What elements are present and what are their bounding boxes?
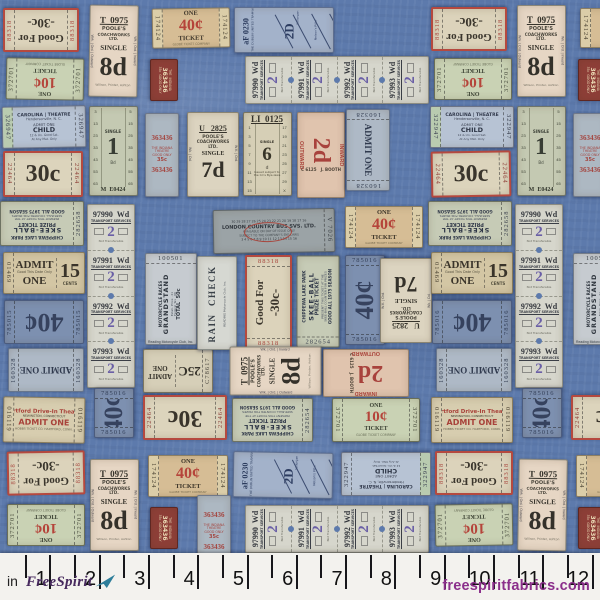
ticket-inner: 78501640¢785016 [346, 256, 384, 344]
ticket-inner: RAIN CHECKREADING Motorcycle Club, Inc. [198, 257, 236, 349]
ticket-side-text: Wk. | Od. [188, 115, 192, 194]
ticket-inner: OUTWARDINWARD2dC 6125 J. BOOTH [324, 350, 408, 396]
ticket-text: ONE [23, 275, 47, 287]
ticket-text: M E0424 [529, 187, 554, 194]
ticket-forty_cent: 174124ONE40¢TICKETGLOBE TICKET COMPANY17… [345, 206, 423, 248]
grid-number: 13 [91, 121, 101, 126]
ticket-body: Good For-30c- [247, 267, 290, 338]
ticket-body: Reading Motorcycle Club, Inc.MOTORCYCLE … [574, 264, 600, 344]
ticket-body: 30 29 28 27 26 25 24 23 22 21 20 19 18 1… [214, 209, 325, 253]
number-column: 3132333435363 [519, 108, 530, 187]
ticket-text: LI 0125 [251, 114, 283, 124]
ticket-inner: 372701ONE10¢TICKETGLOBE TICKET COMPANY37… [7, 58, 84, 99]
ticket-text: 1 [107, 134, 119, 161]
ticket-grandstand: Reading Motorcycle Club, Inc.MOTORCYCLE … [573, 253, 600, 345]
ticket-inner: THE INDIANA36343635c GOOD ONLY [151, 508, 177, 548]
ticket-text: T 0975 [239, 357, 249, 385]
ticket-text: 15 [60, 260, 80, 282]
mini-box [361, 63, 368, 73]
ticket-text: GLOBE TICKET COMPANY [173, 42, 210, 46]
ticket-text: 35c GOOD ONLY [585, 515, 589, 542]
ticket-text: 363436 [161, 67, 168, 92]
strip-segment: 97991 WdTRANSPORT SERVICES2Not Transfera… [516, 251, 562, 297]
ticket-side-text: Wrk. | Ord. | Outward [89, 8, 95, 94]
strip-value-row: 2 [522, 315, 556, 332]
ticket-right-block: ADMITONE [145, 355, 176, 387]
ticket-text: CHILD [375, 467, 397, 474]
ticket-text: GOOD ALL 1975 SEASON [239, 405, 294, 409]
ticket-stub: 88318 [495, 9, 505, 49]
ticket-stub: 174124 [217, 456, 227, 496]
strip-value-row: 2 [522, 224, 556, 241]
ticket-text: 40¢ [99, 399, 128, 427]
ticket-u2825_7d: Wk. | Od.W.K. | Ord.U 2825POOLE'SCOACHWO… [380, 258, 432, 343]
ticket-text: TICKET [34, 512, 57, 519]
mini-box [361, 512, 368, 522]
strip-value-row: 2 [94, 224, 128, 241]
ticket-text: 10¢ [365, 409, 388, 426]
mini-box [407, 63, 414, 73]
ticket-body: Wk. | Od.W.K. | Ord.U 2825POOLE'SCOACHWO… [188, 113, 238, 196]
strip-segment: 97993 WdTRANSPORT SERVICES2Not Transfera… [383, 57, 428, 103]
ticket-body: aF 0230THE DUBLIN UNITED TRAMWAYS CO., L… [235, 8, 333, 52]
ticket-stub: 174124 [346, 207, 356, 247]
ticket-text: GLOBE TICKET COMPANY [365, 242, 402, 245]
strip-segment: 97993 WdTRANSPORT SERVICES2Not Transfera… [516, 342, 562, 387]
ticket-body: Reading Motorcycle Club, Inc.MOTORCYCLE … [146, 264, 196, 344]
ticket-text: Not Transferable [373, 68, 376, 93]
ticket-chippewa: 282658CHIPPEWA LAKE PARKSKEE-BALLPRIZE T… [428, 201, 512, 246]
grid-number: 23 [519, 133, 529, 138]
ticket-stub: 22464 [499, 152, 510, 194]
ticket-text: ONE [467, 90, 480, 97]
ticket-text: CHIPPEWA LAKE PARK [11, 234, 63, 239]
grid-number: 33 [91, 145, 101, 150]
ticket-stub: 372701 [502, 504, 513, 544]
ticket-text: 40¢ [453, 307, 492, 336]
grid-number: 21 [280, 143, 290, 148]
ticket-stub: 016119 [74, 399, 85, 443]
ruler-tick-inch [148, 555, 150, 589]
ticket-body: ONE40¢TICKETGLOBE TICKET COMPANY [163, 9, 220, 48]
ticket-text: 2 [310, 525, 327, 533]
ticket-text: Bd [538, 161, 543, 165]
ticket-inner: 322947CAROLINA | THEATREHendersonville, … [431, 107, 513, 147]
ticket-body: ADMITGood This Date OnlyONE15CENTS [14, 253, 84, 293]
ticket-text: READING Motorcycle Club, Inc. [223, 269, 226, 339]
ticket-text: ADMIT ONE [20, 365, 73, 375]
grid-number: 27 [280, 170, 290, 175]
ticket-inner: 372701ONE10¢TICKETGLOBE TICKET COMPANY37… [435, 59, 511, 99]
ticket-text: Not Transferable [527, 332, 552, 335]
ticket-text: SKEE-BALL COUNTER FOR PRIZES [12, 213, 62, 216]
ticket-stub: 785016 [523, 389, 561, 399]
grid-number: 19 [280, 134, 290, 139]
ruler: in 123456789101112 FreeSpirit freespirit… [0, 553, 600, 600]
ticket-stub: 785015 [5, 301, 15, 343]
mini-box [546, 228, 556, 235]
ticket-text: C 6125 J. BOOTH [301, 168, 341, 172]
number-column: 5152535455565 [553, 108, 564, 187]
ticket-forty_cent: 174124ONE40¢TICKETGLOBE TICKET COMPANY17… [580, 8, 600, 48]
ticket-text: 2 [265, 525, 282, 533]
ticket-inner: 282654CHIPPEWA LAKE PARKSKEE-BALLPRIZE T… [233, 399, 312, 441]
ticket-body: 363436THE INDIANATHEATREGOOD ONLY35c3634… [574, 114, 600, 196]
strip-value-row: 2 [94, 361, 128, 378]
ticket-admit25c: C7861725CADMITONE [143, 349, 213, 393]
ruler-tick-inch [592, 555, 594, 589]
ticket-body: 40¢ [15, 301, 73, 343]
ticket-text: ONE [377, 209, 391, 216]
ticket-text: 40¢ [527, 399, 556, 427]
ticket-body: 40¢ [95, 399, 133, 427]
mini-box [361, 87, 368, 97]
ticket-text: Good For [446, 31, 492, 43]
ruler-number: 3 [123, 568, 145, 591]
ticket-inner: THE INDIANA36343635c GOOD ONLY [151, 60, 177, 100]
grid-number: 45 [554, 157, 564, 162]
ticket-body: LI 012513579111315SINGLE6dIssued subject… [244, 113, 291, 195]
grid-number: 23 [91, 133, 101, 138]
ticket-text: SKEE-BALL [243, 422, 292, 429]
mini-box [94, 366, 104, 373]
ticket-text: 7d [394, 271, 417, 296]
ticket-body: 30c [583, 397, 600, 438]
ticket-side-text: OUTWARD [298, 115, 304, 195]
ticket-text: LTD. [537, 491, 547, 496]
ticket-stub: 160328 [501, 349, 511, 391]
ticket-body: Wrk. | Ord. | OutwardWk. | Ord. | Inward… [518, 460, 567, 551]
ticket-text: CHIPPEWA LAKE PARK [439, 234, 491, 239]
ticket-split: 25CADMITONE [145, 351, 201, 391]
grid-number: 23 [280, 152, 290, 157]
ticket-body: ONE10¢TICKETGLOBE TICKET COMPANY [18, 505, 74, 545]
ticket-right-block: 15CENTS [56, 258, 83, 288]
ticket-body: Wrk. | Ord. | OutwardWk. | Ord. | Inward… [230, 348, 320, 395]
ticket-text: ONE [369, 403, 382, 410]
ticket-stub: 160328 [73, 349, 83, 391]
ticket-text: 363436 [589, 67, 596, 92]
ticket-inner: 174124ONE40¢TICKETGLOBE TICKET COMPANY17… [153, 8, 230, 47]
ticket-split: ADMITGood This Date OnlyONE15CENTS [15, 254, 83, 292]
ticket-strip97990: 97990 WdTRANSPORT SERVICES2Not Transfera… [87, 204, 135, 388]
ticket-inner: Reading Motorcycle Club, Inc.MOTORCYCLE … [574, 254, 600, 344]
ruler-number: 4 [172, 568, 194, 591]
ticket-body: 363436THE INDIANATHEATREGOOD ONLY35c3634… [198, 496, 230, 553]
mini-box [407, 536, 414, 546]
mini-box [269, 512, 276, 522]
mini-box [522, 228, 532, 235]
ruler-tick-inch [394, 555, 396, 589]
ticket-stub: 785016 [501, 301, 511, 343]
strip-value-row: 2 [265, 512, 282, 546]
ticket-stub: 016119 [432, 398, 442, 442]
ticket-text: 2 [107, 315, 115, 332]
ruler-tick-inch [345, 555, 347, 589]
ticket-body: ONE10¢TICKETGLOBE TICKET COMPANY [343, 399, 409, 441]
ticket-body: 25CADMITONE [144, 350, 202, 392]
ticket-strip: 97990 WdTRANSPORT SERVICES2Not Transfera… [246, 506, 428, 552]
ticket-inner: 2246430c22464 [433, 152, 510, 195]
ticket-inner: 363436THE INDIANATHEATREGOOD ONLY35c3634… [574, 114, 600, 196]
ticket-text: 2d [358, 360, 383, 387]
mini-box [269, 63, 276, 73]
ticket-text: Willson, Printer, Ashton [97, 538, 132, 541]
ticket-hartford: 016119Hartford Drive-In TheatreNEWINGTON… [3, 396, 86, 443]
ticket-text: -30c- [32, 458, 60, 473]
ticket-red363436: THE INDIANA36343635c GOOD ONLY [578, 507, 600, 549]
ticket-stub: 100501 [146, 254, 196, 264]
punch-hole [288, 526, 294, 532]
ticket-text: T 0975 [527, 15, 555, 25]
ticket-text: 6 [262, 144, 272, 165]
ticket-text: HOBBS TICKET CO. HARTFORD, CONN. [15, 428, 73, 432]
freespirit-logo: FreeSpirit [26, 574, 118, 591]
mini-box [522, 274, 532, 281]
ticket-number-grid: 3132333435363SINGLE1Bd5152535455565 [91, 108, 136, 187]
ticket-stub: 322947 [420, 453, 430, 495]
ticket-chippewa: 282654CHIPPEWA LAKE PARKSKEE-BALLPRIZE T… [297, 255, 340, 347]
ticket-stub: 785016 [433, 301, 443, 343]
ticket-text: U 2825 [199, 125, 227, 134]
ticket-strip97990: 97990 WdTRANSPORT SERVICES2Not Transfera… [515, 204, 563, 388]
ticket-text: THE DUBLIN UNITED TRAMWAYS CO., LTD. [251, 8, 254, 52]
ticket-ten_cent: 372701ONE10¢TICKETGLOBE TICKET COMPANY37… [7, 504, 85, 546]
ticket-stub: C78617 [202, 350, 212, 392]
ticket-stub: 372701 [74, 505, 84, 545]
ticket-text: THE DUBLIN UNITED TRAMWAYS CO., LTD. [250, 452, 254, 496]
ticket-text: Willson, Printer, Ashton [308, 354, 311, 389]
ticket-af0230: aF 0230THE DUBLIN UNITED TRAMWAYS CO., L… [233, 451, 334, 499]
ticket-inner: LI 012513579111315SINGLE6dIssued subject… [244, 113, 291, 195]
strip-segment: 97992 WdTRANSPORT SERVICES2Not Transfera… [338, 506, 384, 552]
website-url: freespiritfabrics.com [442, 578, 590, 594]
grid-number: 65 [554, 181, 564, 186]
ticket-text: GLOBE TICKET COMPANY [26, 508, 66, 512]
mini-box [407, 512, 414, 522]
grid-number: 1 [245, 125, 255, 130]
ticket-ten_cent: 372701ONE10¢TICKETGLOBE TICKET COMPANY37… [6, 57, 85, 100]
ticket-side-text: W.K. | Ord. [381, 261, 385, 340]
ticket-thirty_c: 2246430c22464 [571, 395, 600, 440]
ticket-text: 2 [356, 525, 373, 533]
ticket-text: 2 [535, 315, 543, 332]
ticket-text: GLOBE TICKET COMPANY [453, 62, 493, 66]
ticket-stub: 22464 [573, 397, 583, 438]
paper-plane-icon [93, 573, 119, 591]
ticket-text: LTD. [261, 366, 265, 375]
ticket-body: ONE40¢TICKETGLOBE TICKET COMPANY [356, 207, 412, 247]
mini-box [118, 320, 128, 327]
strip-value-row: 2 [310, 512, 327, 546]
ticket-body: ONE10¢TICKETGLOBE TICKET COMPANY [446, 505, 503, 546]
ticket-inner: Reading Motorcycle Club, Inc.MOTORCYCLE … [146, 254, 196, 344]
ticket-text: 363436 [589, 515, 596, 540]
ticket-text: ONE [152, 363, 167, 371]
ticket-text: Not Transferable [527, 286, 552, 289]
mini-box [361, 536, 368, 546]
ticket-goodfor30: 88318Good For-30c-88318 [3, 8, 79, 52]
ticket-stub: 160328 [347, 180, 389, 190]
grid-number: 35 [126, 145, 136, 150]
ticket-strip: 97990 WdTRANSPORT SERVICES2Not Transfera… [88, 205, 134, 387]
mini-box [546, 274, 556, 281]
ticket-text: -30c- [455, 15, 482, 30]
ticket-text: Not Transferable [327, 517, 330, 542]
ticket-text: 2 [356, 76, 373, 84]
ticket-text: 1 [535, 134, 547, 161]
grid-number: 29 [280, 179, 290, 184]
ticket-side-text: Wk. | Ord. | Inward [232, 348, 318, 352]
ticket-text: 2 [535, 224, 543, 241]
ticket-stub: 174124 [577, 456, 587, 496]
ticket-text: SINGLE [395, 296, 418, 303]
ticket-text: TICKET [461, 66, 484, 73]
grid-number: X [280, 188, 290, 193]
ticket-inner: 78501640¢785016 [523, 389, 561, 437]
ticket-text: 363436 [204, 544, 225, 552]
grid-number: 25 [126, 133, 136, 138]
grid-number: 5 [126, 109, 136, 114]
ticket-side-text: INWARD [338, 115, 344, 195]
ticket-red363436: THE INDIANA36343635c GOOD ONLY [578, 59, 600, 101]
ticket-main: ADMITGood This Date OnlyONE [443, 259, 482, 287]
strip-value-row: 2 [356, 512, 373, 546]
ticket-strip: 97990 WdTRANSPORT SERVICES2Not Transfera… [246, 57, 428, 103]
ticket-text: ADMIT ONE [448, 365, 501, 375]
strip-segment: 97993 WdTRANSPORT SERVICES2Not Transfera… [88, 342, 134, 387]
ticket-text: T 0975 [99, 15, 128, 26]
number-column: 5152535455565 [125, 108, 136, 187]
grid-number: 45 [126, 157, 136, 162]
mini-box [94, 228, 104, 235]
ticket-stub: 785016 [523, 427, 561, 437]
ticket-text: At Any Mat. Only [373, 460, 398, 463]
ticket-inner: Wk. | Od.W.K. | Ord.U 2825POOLE'SCOACHWO… [188, 113, 238, 196]
ticket-stub: 100501 [574, 254, 600, 264]
ticket-text: 2 [535, 269, 543, 286]
punch-hole [108, 293, 114, 299]
ticket-text: HOBBS TICKET CO. HARTFORD, CONN. [443, 428, 501, 431]
ticket-inner: THE INDIANA36343635c GOOD ONLY [579, 508, 600, 548]
ticket-body: CAROLINA | THEATREHendersonville, N. C.A… [13, 106, 76, 147]
strip-segment: 97990 WdTRANSPORT SERVICES2Not Transfera… [246, 506, 292, 552]
ticket-side-text: Wrk. | Ord. | Outward [232, 391, 318, 395]
ticket-inner: 363436THE INDIANATHEATREGOOD ONLY35c3634… [146, 114, 178, 196]
ticket-inner: 01469ADMITGood This Date OnlyONE15CENTS [432, 253, 512, 293]
strip-segment: 97993 WdTRANSPORT SERVICES2Not Transfera… [383, 506, 428, 552]
ticket-text: 363436 [204, 512, 225, 520]
strip-value-row: 2 [310, 63, 327, 97]
ticket-text: At Any Mat. Only [32, 137, 57, 141]
ticket-text: T 0975 [100, 469, 128, 479]
ticket-inner: 3132333435363SINGLE1Bd5152535455565M E04… [518, 107, 565, 195]
ticket-goodfor30: 88318Good For-30c-88318 [435, 451, 513, 495]
punch-hole [108, 247, 114, 253]
ticket-body: THE INDIANA36343635c GOOD ONLY [579, 508, 600, 548]
ticket-text: TOTAL 50c [177, 288, 183, 319]
grid-number: 25 [280, 161, 290, 166]
mini-box [546, 320, 556, 327]
ticket-text: 2d [308, 138, 335, 163]
ticket-pooles8d: Wrk. | Ord. | OutwardWk. | Ord. | Inward… [88, 5, 139, 98]
ticket-inner: 363436THE INDIANATHEATREGOOD ONLY35c3634… [198, 496, 230, 553]
ticket-text: 10¢ [463, 519, 486, 536]
ticket-chippewa: 282658CHIPPEWA LAKE PARKSKEE-BALLPRIZE T… [0, 201, 84, 246]
ticket-text: 7d [201, 158, 224, 183]
ticket-body: ADMIT ONE [447, 349, 501, 391]
ticket-booth2d: OUTWARDINWARD2dC 6125 J. BOOTH [297, 112, 345, 198]
ticket-text: Not Transferable [99, 286, 124, 289]
number-column: 3132333435363 [91, 108, 102, 187]
ticket-text: CENTS [491, 282, 506, 286]
ruler-number: 7 [320, 568, 342, 591]
ticket-text: 40¢ [25, 307, 64, 336]
punch-hole [334, 526, 340, 532]
ticket-text: Not Transferable [99, 240, 124, 243]
ticket-inner: 88318Good For-30c-88318 [433, 9, 505, 49]
ruler-tick-inch [197, 555, 199, 589]
ticket-af0230: aF 0230THE DUBLIN UNITED TRAMWAYS CO., L… [234, 7, 334, 53]
ticket-inner: 016119Hartford Drive-In TheatreNEWINGTON… [4, 397, 85, 442]
ticket-text: SINGLE [528, 45, 554, 53]
ticket-blue40: 78501640¢785016 [94, 388, 134, 438]
ticket-text: ONE [451, 275, 475, 287]
ticket-text: 2 [535, 361, 543, 378]
grid-number: 13 [519, 121, 529, 126]
ticket-text: 35c GOOD ONLY [157, 67, 161, 94]
ticket-strip97990: 97990 WdTRANSPORT SERVICES2Not Transfera… [245, 56, 429, 104]
ticket-red363436: THE INDIANA36343635c GOOD ONLY [150, 59, 178, 101]
fabric-swatch-photo: 88318Good For-30c-88318372701ONE10¢TICKE… [0, 0, 600, 600]
ticket-stub: 322947 [503, 107, 513, 147]
ticket-text: Willson, Printer, Ashton [524, 537, 559, 541]
ticket-body: ADMIT ONE [19, 349, 73, 391]
ticket-stub: 372701 [435, 59, 445, 99]
ticket-side-text: Wrk. | Ord. | Outward [91, 462, 95, 548]
grid-center: SINGLE1Bd [102, 108, 125, 187]
ticket-text: SKEE-BALL COUNTER FOR PRIZES [440, 213, 490, 216]
strip-value-row: 2 [265, 63, 282, 97]
ticket-main: ADMITGood This Date OnlyONE [15, 259, 54, 287]
ticket-text: 8d [100, 506, 127, 535]
ticket-text: 363436 [161, 515, 168, 540]
ticket-body: aF 0230THE DUBLIN UNITED TRAMWAYS CO., L… [234, 452, 333, 498]
ticket-pooles8d: Wrk. | Ord. | OutwardWk. | Ord. | Inward… [229, 347, 321, 396]
ticket-text: GLOBE TICKET COMPANY [454, 507, 494, 511]
ticket-forty_cent: 174124ONE40¢TICKETGLOBE TICKET COMPANY17… [148, 455, 228, 497]
ticket-inner: 30 29 28 27 26 25 24 23 22 21 20 19 18 1… [214, 209, 335, 253]
grid-center: SINGLE1Bd [530, 108, 553, 187]
grid-number: 63 [519, 181, 529, 186]
ticket-stub: 174124 [149, 456, 159, 496]
ticket-text: 8d [528, 506, 556, 536]
ticket-stub: 160328 [437, 349, 447, 391]
ticket-booth2d: OUTWARDINWARD2dC 6125 J. BOOTH [323, 349, 409, 397]
ticket-stub: 016119 [502, 398, 512, 442]
ticket-text: GOOD ALL 1975 SEASON [9, 208, 64, 212]
strip-segment: 97990 WdTRANSPORT SERVICES2Not Transfera… [246, 57, 292, 103]
ticket-body: 40¢ [346, 266, 384, 334]
ticket-text: Not Transferable [527, 378, 552, 381]
ticket-inner: Wrk. | Ord. | OutwardWk. | Ord. | Inward… [230, 348, 320, 395]
ticket-thirty_c: 2246430c22464 [3, 151, 83, 197]
ticket-text: C 6125 J. BOOTH [348, 353, 352, 393]
ticket-body: 40¢ [443, 301, 501, 343]
ticket-inner: 282654CHIPPEWA LAKE PARKSKEE-BALLPRIZE T… [298, 256, 339, 346]
ticket-side-text: Wk. | Ord. | Inward [561, 462, 567, 548]
ticket-body: Hartford Drive-In TheatreNEWINGTON, CONN… [442, 398, 502, 442]
